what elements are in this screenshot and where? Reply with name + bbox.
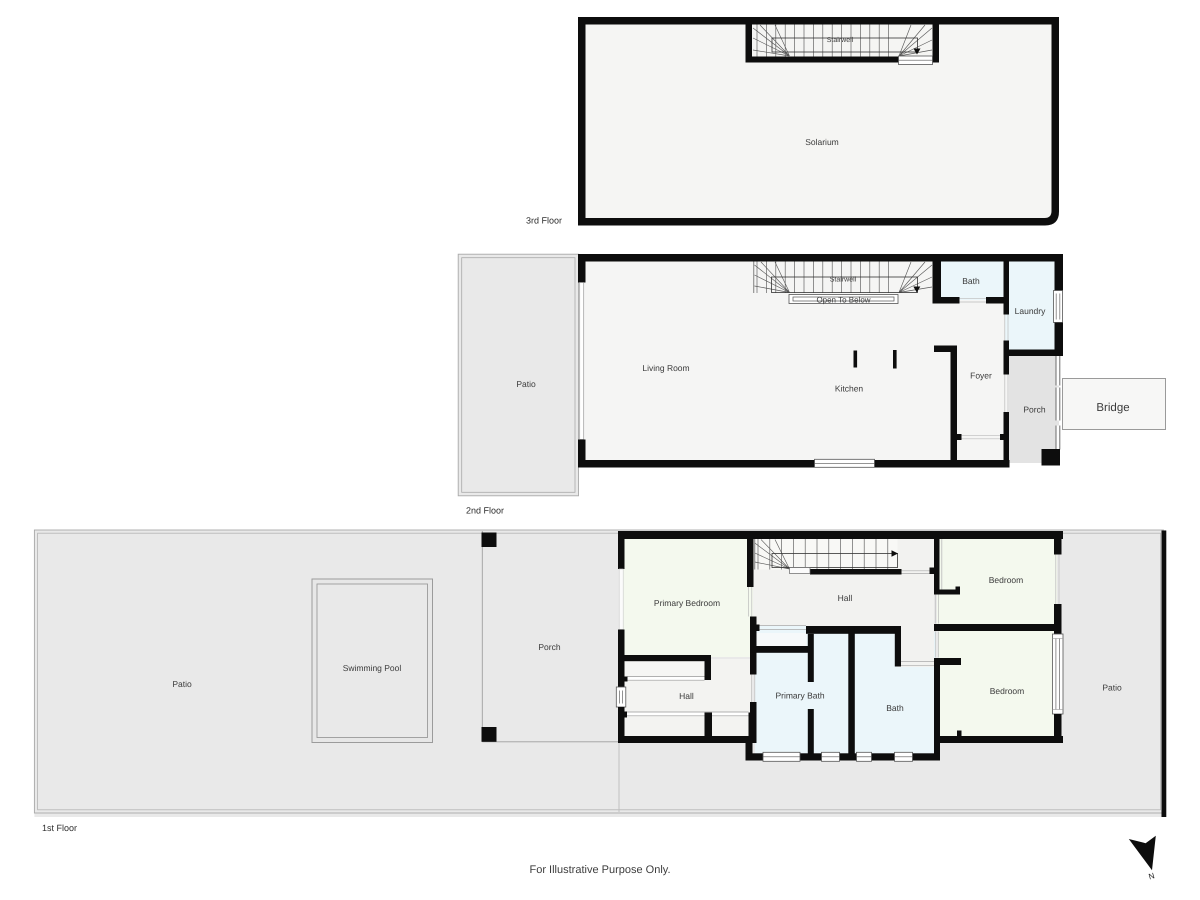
svg-text:Porch: Porch: [538, 642, 560, 652]
svg-text:Porch: Porch: [1023, 405, 1045, 415]
svg-text:3rd Floor: 3rd Floor: [526, 216, 562, 226]
svg-text:Bath: Bath: [886, 703, 904, 713]
svg-text:Patio: Patio: [172, 679, 192, 689]
svg-text:Stairwell: Stairwell: [830, 276, 857, 284]
svg-text:Stairwell: Stairwell: [827, 36, 854, 44]
svg-text:Laundry: Laundry: [1015, 306, 1046, 316]
svg-text:2nd Floor: 2nd Floor: [466, 506, 504, 516]
svg-text:Bridge: Bridge: [1096, 402, 1129, 414]
svg-text:Living Room: Living Room: [642, 363, 689, 373]
svg-text:Primary Bath: Primary Bath: [775, 691, 824, 701]
svg-text:Swimming Pool: Swimming Pool: [343, 663, 402, 673]
svg-text:Open To Below: Open To Below: [816, 296, 870, 305]
svg-text:Foyer: Foyer: [970, 371, 992, 381]
svg-text:Primary Bedroom: Primary Bedroom: [654, 598, 720, 608]
svg-text:Hall: Hall: [679, 691, 694, 701]
svg-text:Solarium: Solarium: [805, 137, 839, 147]
svg-text:Patio: Patio: [1102, 683, 1122, 693]
svg-text:Patio: Patio: [516, 379, 536, 389]
svg-text:Bath: Bath: [962, 276, 980, 286]
svg-text:Bedroom: Bedroom: [990, 686, 1025, 696]
svg-text:Bedroom: Bedroom: [989, 575, 1024, 585]
svg-text:Kitchen: Kitchen: [835, 384, 864, 394]
svg-text:1st Floor: 1st Floor: [42, 823, 77, 833]
svg-text:For Illustrative Purpose Only.: For Illustrative Purpose Only.: [529, 864, 670, 876]
svg-text:Hall: Hall: [838, 593, 853, 603]
